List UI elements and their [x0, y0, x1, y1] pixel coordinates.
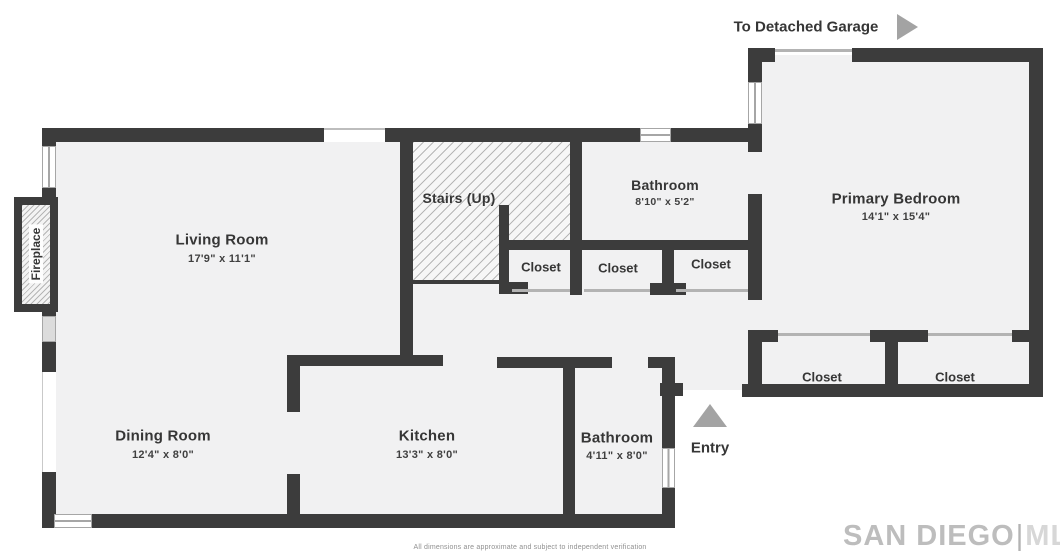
wall-bath-top-1: [497, 357, 612, 368]
window-bottom: [54, 514, 92, 528]
closet-label-5: Closet: [935, 370, 975, 385]
watermark-separator: |: [1016, 520, 1025, 553]
garage-opening-line: [775, 49, 852, 52]
closet-label-4: Closet: [802, 370, 842, 385]
living-room-label: Living Room: [175, 232, 268, 249]
dining-room-label: Dining Room: [115, 428, 211, 445]
wall-closetrow-top: [503, 240, 762, 250]
closet3-door-line: [676, 289, 748, 292]
bathroom-upper-dims: 8'10" x 5'2": [635, 196, 694, 208]
stairs-hatch-lower: [413, 240, 499, 282]
wall-closet-div-2: [662, 250, 674, 284]
wall-bedcloset-stub-right: [1012, 330, 1032, 342]
wall-bedcloset-stub-mid: [870, 330, 928, 342]
floor-plan-canvas: Fireplace Living Room 17'9" x 11'1" Dini…: [0, 0, 1060, 560]
stairs-edge-line: [408, 280, 499, 284]
primary-bedroom-dims: 14'1" x 15'4": [862, 211, 931, 223]
kitchen-dims: 13'3" x 8'0": [396, 449, 458, 461]
wall-bedroom-left-2: [748, 124, 762, 152]
bathroom-lower-dims: 4'11" x 8'0": [586, 450, 647, 462]
garage-label: To Detached Garage: [734, 19, 879, 36]
wall-closet-div-1: [570, 250, 582, 295]
bedcloset1-door-line: [778, 333, 870, 336]
wall-stairs-inner-foot: [499, 282, 528, 294]
entry-arrow-icon: [693, 404, 727, 427]
disclaimer-text: All dimensions are approximate and subje…: [280, 544, 780, 551]
bathroom-lower-label: Bathroom: [581, 430, 653, 447]
fireplace-label: Fireplace: [29, 225, 43, 284]
window-left-upper: [42, 146, 56, 188]
wall-bath-right-2: [662, 488, 675, 514]
entry-label: Entry: [691, 440, 729, 457]
wall-bath-right-1: [662, 357, 675, 448]
closet-label-3: Closet: [691, 257, 731, 272]
closet-label-1: Closet: [521, 260, 561, 275]
primary-bedroom-label: Primary Bedroom: [832, 191, 961, 208]
wall-dining-kitchen-2: [287, 474, 300, 514]
wall-stairs-right: [570, 128, 582, 250]
window-left-small: [42, 316, 56, 342]
wall-top-1: [42, 128, 324, 142]
watermark-brand-text: SAN DIEGO: [843, 520, 1015, 553]
wall-kitchen-top: [287, 355, 443, 366]
wall-bedcloset-stub-left: [748, 330, 778, 342]
closet1-door-line: [512, 289, 570, 292]
dining-room-dims: 12'4" x 8'0": [132, 449, 194, 461]
wall-top-2: [385, 128, 640, 142]
window-bathroom-upper: [640, 128, 671, 142]
wall-stairs-left: [400, 142, 413, 363]
bedcloset2-door-line: [928, 333, 1012, 336]
living-room-dims: 17'9" x 11'1": [188, 253, 256, 265]
wall-bottom: [42, 514, 675, 528]
stairs-label: Stairs (Up): [423, 190, 496, 206]
wall-dining-kitchen-1: [287, 357, 300, 412]
window-livingroom-top: [324, 128, 385, 142]
wall-bedroom-left-1: [748, 48, 762, 82]
window-left-large: [42, 372, 56, 472]
wall-bedroom-right: [1029, 48, 1043, 397]
closet-label-2: Closet: [598, 261, 638, 276]
mls-watermark: SAN DIEGO|MLS: [843, 520, 1055, 553]
closet2-door-line: [584, 289, 650, 292]
wall-entry-stub: [660, 383, 683, 396]
wall-bedroom-bottom: [742, 384, 1043, 397]
wall-bedcloset-div: [885, 342, 898, 384]
garage-arrow-icon: [897, 14, 918, 40]
wall-bedroom-top-2: [852, 48, 1043, 62]
bathroom-upper-label: Bathroom: [631, 177, 699, 193]
window-bathroom-lower: [662, 448, 675, 488]
window-bedroom-walkway: [748, 82, 762, 124]
kitchen-label: Kitchen: [399, 428, 455, 445]
wall-bath-left: [563, 365, 575, 514]
watermark-suffix-text: MLS: [1025, 520, 1060, 553]
